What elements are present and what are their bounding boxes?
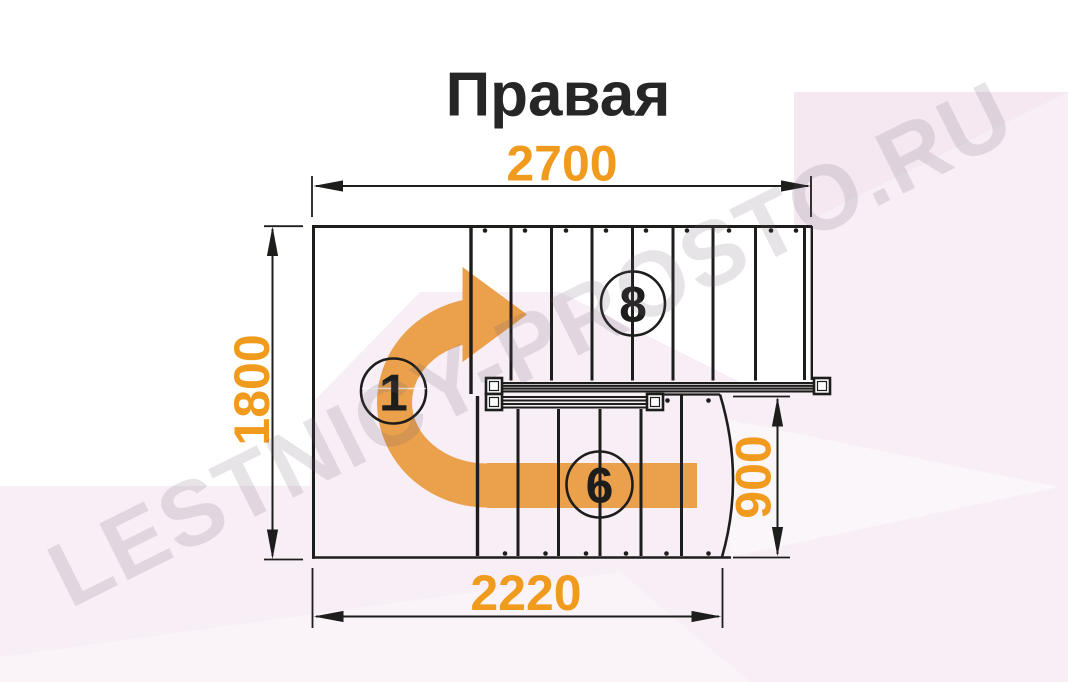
svg-text:6: 6 bbox=[586, 458, 614, 514]
svg-text:Правая: Правая bbox=[446, 61, 671, 130]
svg-text:2220: 2220 bbox=[470, 565, 581, 621]
svg-text:2700: 2700 bbox=[506, 136, 617, 192]
svg-text:900: 900 bbox=[726, 435, 782, 518]
